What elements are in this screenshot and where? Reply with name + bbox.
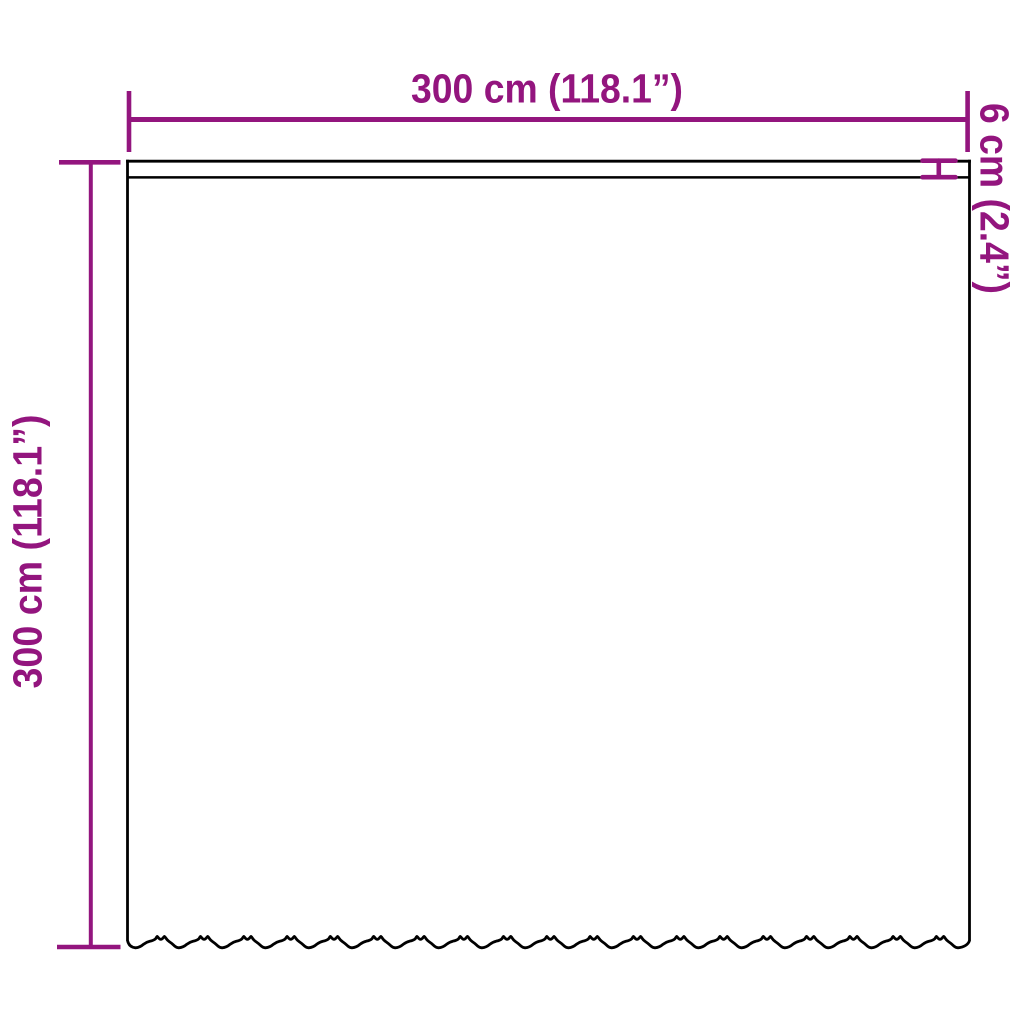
svg-text:300 cm (118.1”): 300 cm (118.1”) bbox=[5, 415, 51, 689]
svg-text:6 cm (2.4”): 6 cm (2.4”) bbox=[972, 103, 1018, 294]
svg-text:300 cm (118.1”): 300 cm (118.1”) bbox=[411, 66, 683, 112]
